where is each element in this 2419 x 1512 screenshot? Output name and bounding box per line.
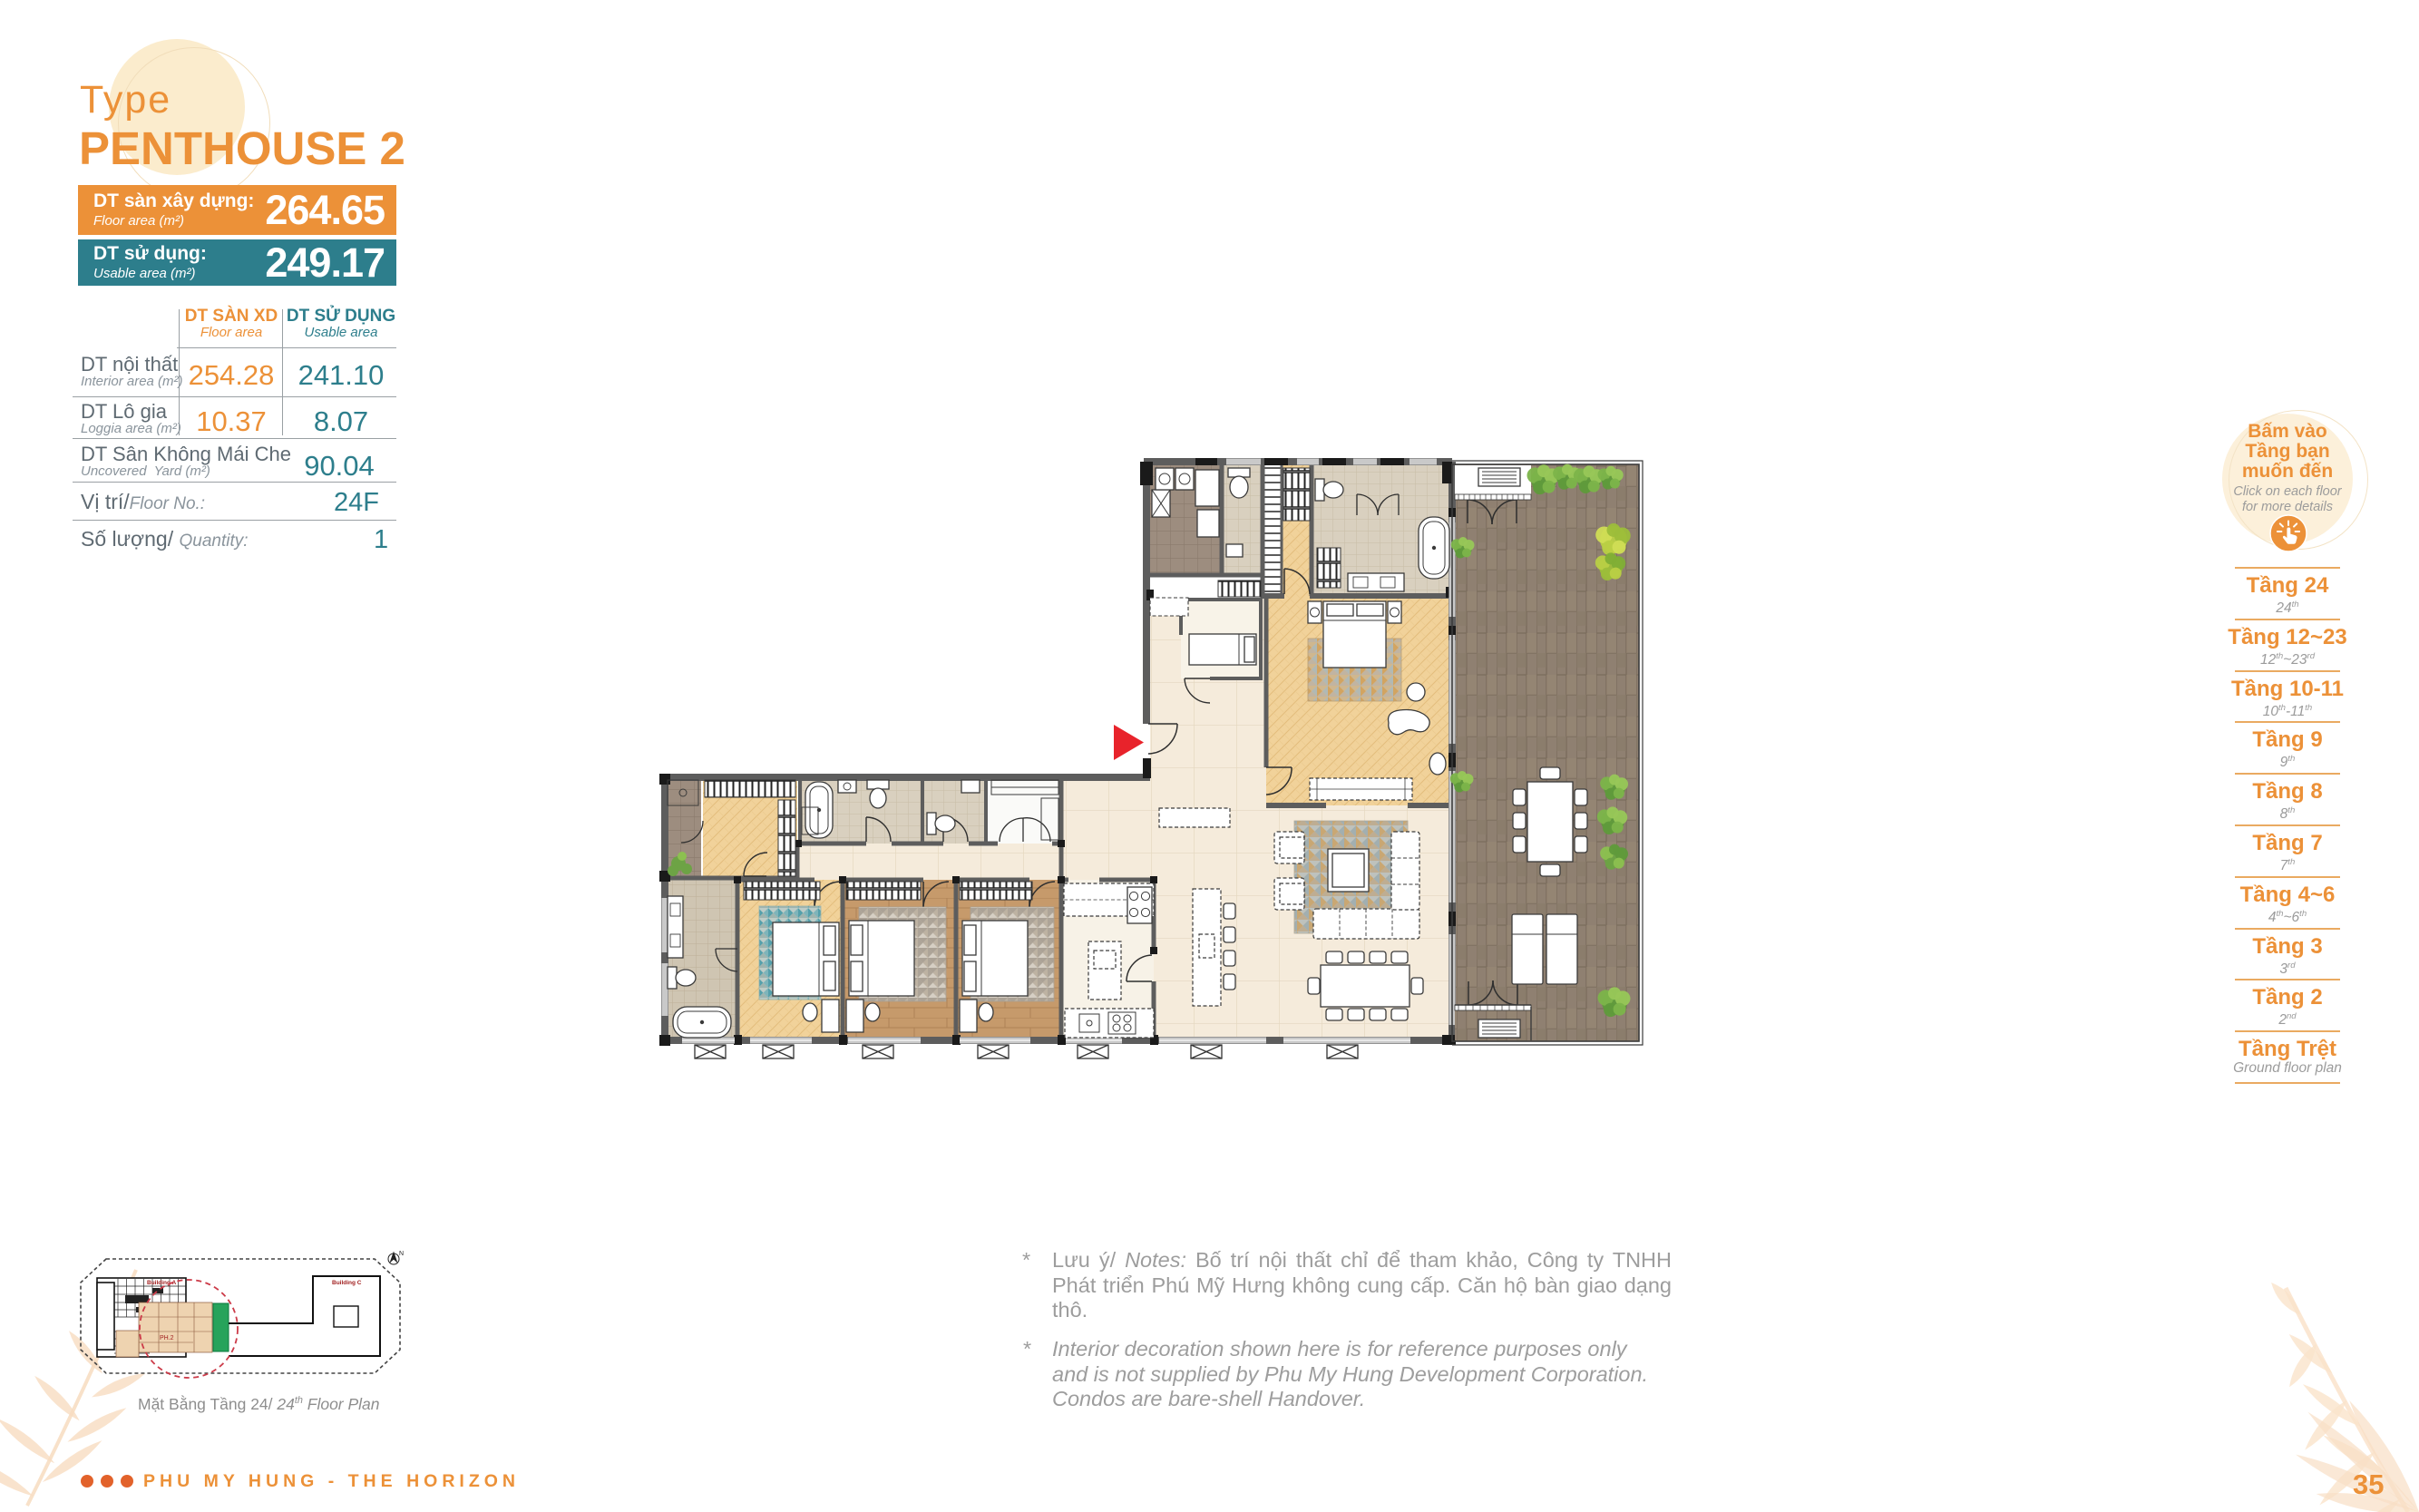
- svg-text:N: N: [399, 1251, 404, 1257]
- svg-text:PH.2: PH.2: [160, 1335, 174, 1341]
- svg-text:Building C: Building C: [332, 1280, 362, 1286]
